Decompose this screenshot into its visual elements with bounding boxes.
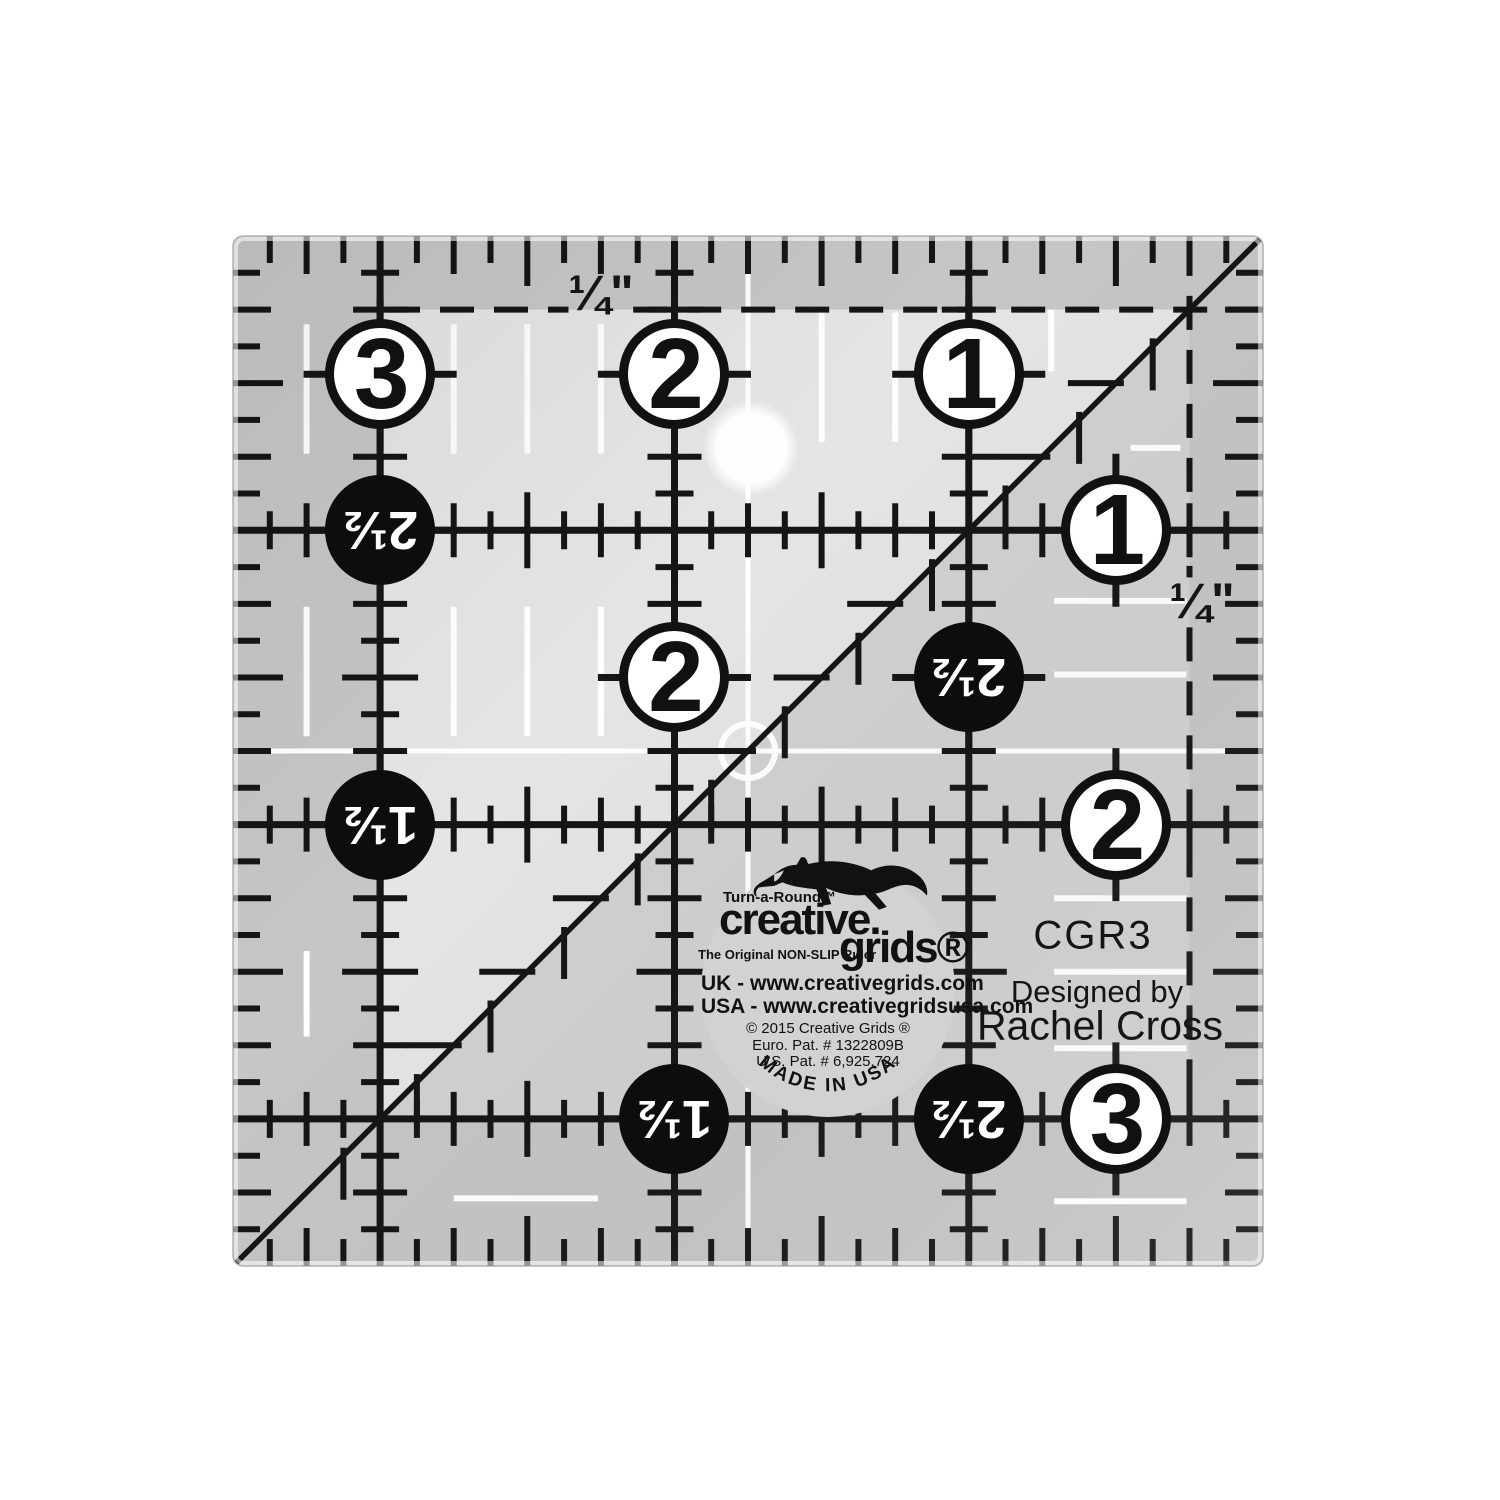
ruler-grid-graphic (0, 0, 1500, 1500)
product-photo: 32112322½2½1½1½2½ ¼" ¼" CGR3 Designed by… (0, 0, 1500, 1500)
